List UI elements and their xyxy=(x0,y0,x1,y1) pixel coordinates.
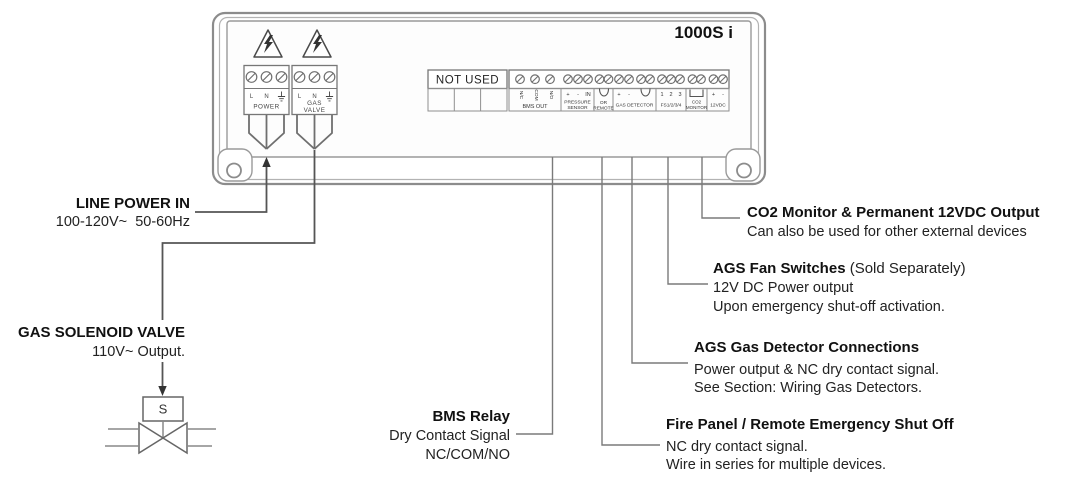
power-block-screws xyxy=(246,72,287,83)
co2-monitor-label2: MONITOR xyxy=(686,105,708,110)
bms-com-label: COM xyxy=(533,89,539,100)
not-used-label: NOT USED xyxy=(436,75,499,87)
gas-solenoid-title: GAS SOLENOID VALVE xyxy=(18,324,185,341)
arrow-down-icon xyxy=(158,386,166,396)
gas-valve-terminal-block: L N GAS VALVE xyxy=(292,66,337,115)
fan-switches-detail2: Upon emergency shut-off activation. xyxy=(713,299,945,315)
gas-solenoid-detail: 110V~ Output. xyxy=(92,344,185,360)
terminal-n-label: N xyxy=(264,94,268,100)
pressure-minus-label: - xyxy=(577,92,579,98)
fan-switches-title: AGS Fan Switches (Sold Separately) xyxy=(713,260,966,277)
bms-leader-line xyxy=(516,157,553,434)
fire-panel-detail1: NC dry contact signal. xyxy=(666,439,808,455)
remote-label2: REMOTE xyxy=(593,106,614,112)
co2-output-title: CO2 Monitor & Permanent 12VDC Output xyxy=(747,204,1040,221)
gasdet-plus-label: + xyxy=(617,92,620,98)
gas-detector-label: GAS DETECTOR xyxy=(616,103,654,109)
pressure-label1: PRESSURE xyxy=(564,100,590,106)
panel-model: 1000S i xyxy=(674,23,733,42)
fan-switches-detail1: 12V DC Power output xyxy=(713,280,853,296)
fan-switches-title-bold: AGS Fan Switches xyxy=(713,260,846,277)
gas-valve-block-screws xyxy=(294,72,335,83)
line-power-title: LINE POWER IN xyxy=(76,195,190,212)
co2-monitor-label1: CO2 xyxy=(692,100,702,105)
gas-solenoid-valve-symbol: S xyxy=(105,397,216,453)
bms-no-label: N/O xyxy=(548,91,554,100)
fan-switches-label: FS1/2/3/4 xyxy=(661,103,682,109)
bms-out-label: BMS OUT xyxy=(522,104,548,110)
bms-nc-label: N/C xyxy=(518,91,524,100)
gas-detector-detail2: See Section: Wiring Gas Detectors. xyxy=(694,380,922,396)
terminal-strip-screws xyxy=(516,75,728,84)
line-power-detail: 100-120V~ 50-60Hz xyxy=(56,214,190,230)
pressure-in-label: IN xyxy=(585,92,591,98)
mounting-screw-left xyxy=(227,164,241,178)
callout-bms-relay: BMS Relay Dry Contact Signal NC/COM/NO xyxy=(389,157,552,463)
pressure-label2: SENSOR xyxy=(567,105,588,111)
fs-2-label: 2 xyxy=(669,92,672,98)
12vdc-label: 12VDC xyxy=(710,103,726,109)
gas-valve-block-label2: VALVE xyxy=(304,107,326,114)
valve-body-right xyxy=(163,423,187,453)
wiring-diagram-page: 1000S i L N POWER L N GAS VALVE NOT USED xyxy=(0,0,1070,481)
fire-panel-detail2: Wire in series for multiple devices. xyxy=(666,457,886,473)
fan-switches-title-normal: (Sold Separately) xyxy=(846,260,966,277)
gas-detector-title: AGS Gas Detector Connections xyxy=(694,339,919,356)
fire-panel-title: Fire Panel / Remote Emergency Shut Off xyxy=(666,416,955,433)
bms-relay-detail1: Dry Contact Signal xyxy=(389,428,510,444)
wiring-diagram: 1000S i L N POWER L N GAS VALVE NOT USED xyxy=(0,0,1070,481)
solenoid-letter: S xyxy=(159,402,168,417)
remote-label1: OR xyxy=(600,100,608,106)
gas-detector-leader-line xyxy=(632,157,688,363)
valve-body-left xyxy=(139,423,163,453)
co2-output-detail1: Can also be used for other external devi… xyxy=(747,224,1027,240)
gasdet-minus-label: - xyxy=(628,92,630,98)
12vdc-plus-label: + xyxy=(712,92,715,98)
bms-relay-detail2: NC/COM/NO xyxy=(425,447,510,463)
bms-relay-title: BMS Relay xyxy=(432,408,510,425)
gas-valve-block-label1: GAS xyxy=(307,100,322,107)
pressure-plus-label: + xyxy=(566,92,569,98)
gas-detector-detail1: Power output & NC dry contact signal. xyxy=(694,362,939,378)
fs-1-label: 1 xyxy=(660,92,663,98)
power-block-label: POWER xyxy=(253,104,279,111)
mounting-screw-right xyxy=(737,164,751,178)
fire-panel-leader-line xyxy=(602,157,660,445)
power-terminal-block: L N POWER xyxy=(244,66,289,115)
fs-3-label: 3 xyxy=(678,92,681,98)
12vdc-minus-label: - xyxy=(722,92,724,98)
